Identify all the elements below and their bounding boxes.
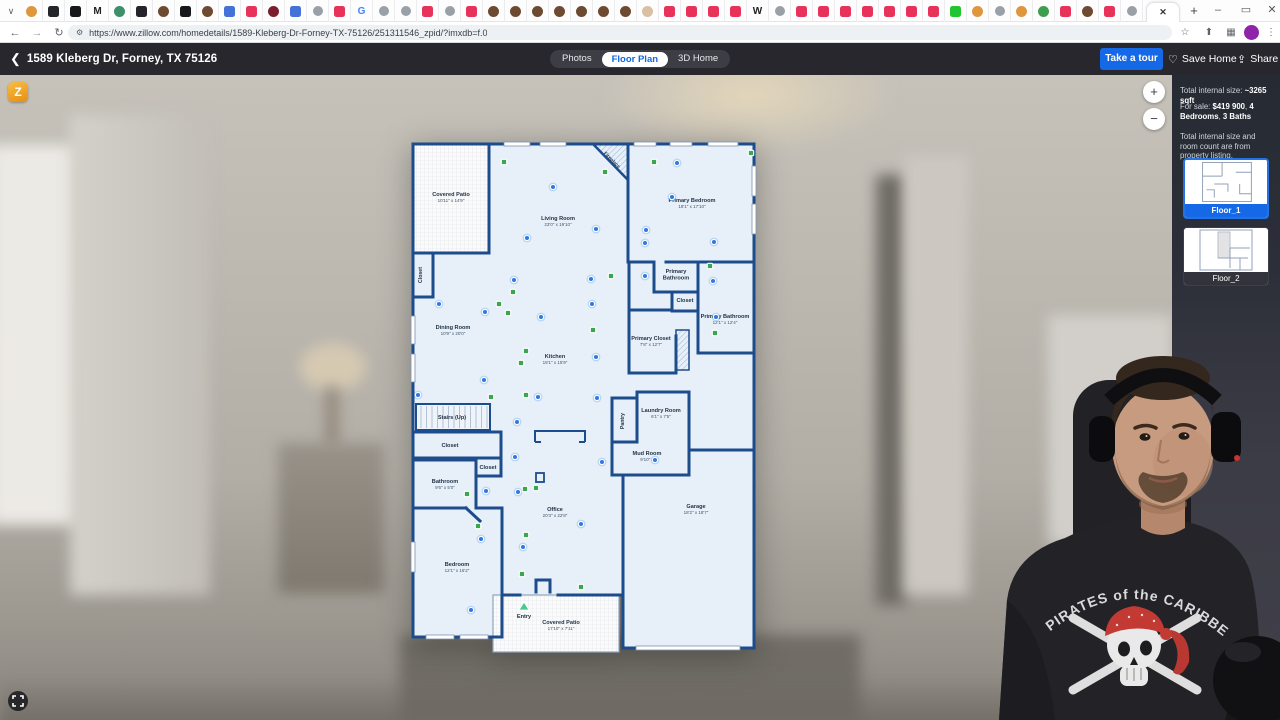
tab-favicon	[114, 6, 125, 17]
tab-favicon	[775, 6, 785, 16]
browser-tab[interactable]	[417, 0, 439, 22]
panorama-point-green[interactable]	[712, 330, 717, 335]
tab-favicon	[818, 6, 829, 17]
tab-favicon	[664, 6, 675, 17]
for-sale-text: For sale: $419 900, 4 Bedrooms, 3 Baths	[1180, 102, 1274, 121]
svg-text:12'1" x 16'2": 12'1" x 16'2"	[445, 568, 470, 573]
fullscreen-button[interactable]	[8, 691, 28, 711]
panorama-point-blue[interactable]	[467, 606, 476, 615]
svg-text:18'1" x 17'10": 18'1" x 17'10"	[678, 204, 706, 209]
panorama-point-blue[interactable]	[710, 238, 719, 247]
svg-text:18'2" x 18'7": 18'2" x 18'7"	[684, 510, 709, 515]
tab-favicon	[1016, 6, 1027, 17]
url-text: https://www.zillow.com/homedetails/1589-…	[89, 28, 487, 38]
panorama-point-blue[interactable]	[480, 376, 489, 385]
panorama-point-green[interactable]	[748, 150, 753, 155]
browser-tab[interactable]	[263, 0, 285, 22]
browser-tab[interactable]	[395, 0, 417, 22]
browser-tab[interactable]	[813, 0, 835, 22]
maximize-button[interactable]: ▭	[1234, 0, 1258, 20]
panorama-point-green[interactable]	[651, 159, 656, 164]
tab-favicon	[906, 6, 917, 17]
tab-favicon	[1104, 6, 1115, 17]
tab-3d-home[interactable]: 3D Home	[668, 52, 728, 66]
refresh-icon[interactable]: ↻	[52, 26, 66, 40]
browser-tab[interactable]	[769, 0, 791, 22]
browser-tab[interactable]	[1077, 0, 1099, 22]
browser-tab[interactable]	[1099, 0, 1121, 22]
svg-text:Closet: Closet	[441, 443, 458, 449]
tab-favicon	[554, 6, 565, 17]
svg-text:Closet: Closet	[418, 267, 424, 283]
svg-text:Pantry: Pantry	[620, 413, 626, 429]
tab-favicon	[70, 6, 81, 17]
tab-favicon	[334, 6, 345, 17]
floor-2-card[interactable]: Floor_2	[1183, 227, 1269, 286]
tab-favicon: G	[358, 6, 366, 17]
browser-tab[interactable]	[21, 0, 43, 22]
tab-favicon	[422, 6, 433, 17]
tab-favicon	[532, 6, 543, 17]
svg-text:20'3" x 22'8": 20'3" x 22'8"	[543, 513, 568, 518]
browser-tab[interactable]: W	[747, 0, 769, 22]
tab-favicon	[379, 6, 389, 16]
browser-tab[interactable]	[197, 0, 219, 22]
panorama-point-green[interactable]	[475, 523, 480, 528]
svg-text:Primary: Primary	[666, 269, 688, 275]
url-bar[interactable]: ⚙ https://www.zillow.com/homedetails/158…	[68, 25, 1172, 40]
browser-tab[interactable]	[175, 0, 197, 22]
share-button[interactable]: ⇪ Share	[1237, 48, 1278, 70]
browser-tab[interactable]	[527, 0, 549, 22]
tab-favicon	[928, 6, 939, 17]
tab-favicon	[401, 6, 411, 16]
browser-tab[interactable]	[571, 0, 593, 22]
tab-favicon	[48, 6, 59, 17]
panorama-point-blue[interactable]	[549, 183, 558, 192]
panorama-point-blue[interactable]	[577, 520, 586, 529]
floor-2-thumbnail-sketch	[1184, 228, 1268, 272]
browser-tab[interactable]	[219, 0, 241, 22]
property-address[interactable]: 1589 Kleberg Dr, Forney, TX 75126	[27, 53, 217, 65]
tab-favicon	[972, 6, 983, 17]
browser-tab[interactable]	[549, 0, 571, 22]
tab-favicon	[862, 6, 873, 17]
panorama-point-green[interactable]	[608, 273, 613, 278]
panorama-point-blue[interactable]	[510, 276, 519, 285]
active-tab[interactable]: ✕	[1146, 2, 1180, 22]
svg-text:10'9" x 20'0": 10'9" x 20'0"	[441, 331, 466, 336]
back-icon[interactable]: ←	[8, 26, 22, 40]
tab-floor-plan[interactable]: Floor Plan	[602, 52, 668, 67]
panorama-point-green[interactable]	[464, 491, 469, 496]
panorama-point-blue[interactable]	[534, 393, 543, 402]
tab-favicon	[246, 6, 257, 17]
extensions-icon[interactable]: ▦	[1224, 26, 1238, 40]
share-label: Share	[1250, 53, 1278, 65]
tab-favicon: M	[93, 6, 101, 17]
svg-text:23'0" x 19'10": 23'0" x 19'10"	[544, 222, 572, 227]
screen: { "browser": { "url": "https://www.zillo…	[0, 0, 1280, 720]
browser-tab[interactable]	[835, 0, 857, 22]
floor-1-thumbnail-sketch	[1185, 160, 1267, 204]
tab-favicon	[26, 6, 37, 17]
browser-tab[interactable]	[879, 0, 901, 22]
browser-tab[interactable]	[791, 0, 813, 22]
lamp-shade-blur	[300, 343, 366, 391]
browser-tab[interactable]	[483, 0, 505, 22]
svg-text:10'11" x 14'9": 10'11" x 14'9"	[438, 198, 465, 203]
browser-tab[interactable]	[307, 0, 329, 22]
take-a-tour-button[interactable]: Take a tour	[1100, 48, 1163, 70]
svg-text:Stairs (Up): Stairs (Up)	[438, 415, 466, 421]
side-panel-icon[interactable]: ⬆	[1202, 26, 1216, 40]
browser-tab[interactable]	[373, 0, 395, 22]
browser-tab[interactable]	[153, 0, 175, 22]
browser-tab[interactable]	[505, 0, 527, 22]
panorama-point-blue[interactable]	[477, 535, 486, 544]
tab-favicon	[290, 6, 301, 17]
webcam-overlay: PIRATES of the CARIBBEAN	[985, 300, 1280, 720]
save-home-label: Save Home	[1182, 53, 1237, 65]
browser-tab[interactable]	[615, 0, 637, 22]
back-chevron-icon[interactable]: ❮	[10, 51, 21, 67]
headphone-cup-right	[1211, 412, 1241, 462]
hallway-blur	[904, 155, 968, 595]
wall-blur	[70, 115, 210, 595]
panorama-point-blue[interactable]	[668, 193, 677, 202]
browser-tab[interactable]: G	[351, 0, 373, 22]
svg-text:19'1" x 15'9": 19'1" x 15'9"	[543, 360, 568, 365]
browser-tab[interactable]	[439, 0, 461, 22]
profile-avatar[interactable]	[1244, 25, 1259, 40]
tab-favicon	[445, 6, 455, 16]
panorama-point-blue[interactable]	[712, 313, 721, 322]
headphone-cup-left	[1089, 416, 1115, 462]
browser-tab[interactable]: M	[87, 0, 109, 22]
new-tab-button[interactable]: +	[1186, 3, 1202, 19]
panorama-point-green[interactable]	[590, 327, 595, 332]
tab-favicon	[180, 6, 191, 17]
tab-favicon	[466, 6, 477, 17]
browser-tab[interactable]	[593, 0, 615, 22]
svg-text:Closet: Closet	[479, 465, 496, 471]
tab-favicon: W	[753, 6, 762, 17]
browser-menu-icon[interactable]: ⋮	[1264, 26, 1278, 40]
minimize-button[interactable]: –	[1206, 0, 1230, 20]
panorama-point-blue[interactable]	[513, 418, 522, 427]
browser-tab[interactable]	[725, 0, 747, 22]
svg-text:Entry: Entry	[517, 614, 532, 620]
svg-text:9'6" x 5'0": 9'6" x 5'0"	[435, 485, 455, 490]
browser-tab[interactable]	[1055, 0, 1077, 22]
browser-tabs: MGW	[21, 0, 1143, 22]
browser-tab[interactable]	[65, 0, 87, 22]
close-button[interactable]: ✕	[1260, 0, 1280, 20]
floor-1-card[interactable]: Floor_1	[1183, 158, 1269, 219]
lamp-stand-blur	[326, 387, 338, 447]
tab-favicon	[708, 6, 719, 17]
tab-favicon	[202, 6, 213, 17]
nightstand-blur	[278, 443, 384, 593]
panorama-point-green[interactable]	[519, 571, 524, 576]
browser-tab[interactable]	[461, 0, 483, 22]
browser-tab[interactable]	[1011, 0, 1033, 22]
browser-tab[interactable]	[131, 0, 153, 22]
tab-favicon	[1082, 6, 1093, 17]
browser-tab[interactable]	[329, 0, 351, 22]
browser-tab[interactable]	[109, 0, 131, 22]
panorama-point-blue[interactable]	[588, 300, 597, 309]
share-icon: ⇪	[1237, 53, 1246, 66]
browser-tab[interactable]	[857, 0, 879, 22]
browser-tab[interactable]	[1033, 0, 1055, 22]
svg-text:Closet: Closet	[676, 298, 693, 304]
zoom-in-button[interactable]: +	[1143, 81, 1165, 103]
tab-favicon	[136, 6, 147, 17]
browser-tab[interactable]	[43, 0, 65, 22]
panorama-point-green[interactable]	[488, 394, 493, 399]
svg-text:17'10" x 7'11": 17'10" x 7'11"	[548, 626, 575, 631]
panorama-point-green[interactable]	[523, 392, 528, 397]
floor-plan[interactable]: Covered Patio10'11" x 14'9"Living Room23…	[408, 140, 768, 660]
panorama-point-green[interactable]	[578, 584, 583, 589]
browser-tab[interactable]	[945, 0, 967, 22]
panorama-point-green[interactable]	[533, 485, 538, 490]
forward-icon[interactable]: →	[30, 26, 44, 40]
tab-search-icon[interactable]: ∨	[4, 4, 18, 18]
tab-favicon	[995, 6, 1005, 16]
browser-tab[interactable]	[285, 0, 307, 22]
panorama-point-blue[interactable]	[537, 313, 546, 322]
tab-favicon	[796, 6, 807, 17]
tab-favicon	[686, 6, 697, 17]
browser-tab[interactable]	[989, 0, 1011, 22]
panorama-point-blue[interactable]	[709, 277, 718, 286]
browser-tab[interactable]	[967, 0, 989, 22]
panorama-point-blue[interactable]	[641, 239, 650, 248]
bookmark-star-icon[interactable]: ☆	[1178, 26, 1192, 40]
panorama-point-blue[interactable]	[651, 456, 660, 465]
tab-favicon	[642, 6, 653, 17]
browser-tab[interactable]	[681, 0, 703, 22]
panorama-point-green[interactable]	[523, 348, 528, 353]
tab-favicon	[224, 6, 235, 17]
browser-tab[interactable]	[241, 0, 263, 22]
panorama-point-blue[interactable]	[593, 394, 602, 403]
browser-tab[interactable]	[659, 0, 681, 22]
browser-tab[interactable]	[637, 0, 659, 22]
floor-1-label: Floor_1	[1185, 204, 1267, 217]
tab-favicon	[510, 6, 521, 17]
panorama-point-green[interactable]	[510, 289, 515, 294]
door-frame-blur	[876, 175, 906, 605]
sidebar-note: Total internal size and room count are f…	[1180, 132, 1274, 161]
panorama-point-green[interactable]	[522, 486, 527, 491]
tab-favicon	[1127, 6, 1137, 16]
panorama-point-blue[interactable]	[519, 543, 528, 552]
browser-tab[interactable]	[901, 0, 923, 22]
svg-text:6'1" x 7'5": 6'1" x 7'5"	[651, 414, 671, 419]
tab-photos[interactable]: Photos	[552, 52, 602, 66]
tab-favicon	[950, 6, 961, 17]
tab-favicon	[884, 6, 895, 17]
tab-favicon	[730, 6, 741, 17]
panorama-point-green[interactable]	[518, 360, 523, 365]
panorama-point-blue[interactable]	[598, 458, 607, 467]
browser-tab[interactable]	[703, 0, 725, 22]
tab-favicon	[620, 6, 631, 17]
tab-favicon	[313, 6, 323, 16]
tab-favicon	[488, 6, 499, 17]
svg-text:7'8" x 12'7": 7'8" x 12'7"	[640, 342, 663, 347]
heart-icon: ♡	[1168, 53, 1178, 66]
panorama-point-green[interactable]	[501, 159, 506, 164]
tab-favicon	[158, 6, 169, 17]
tab-favicon	[1060, 6, 1071, 17]
browser-tab[interactable]	[923, 0, 945, 22]
view-switcher: Photos Floor Plan 3D Home	[550, 50, 730, 68]
tab-favicon	[268, 6, 279, 17]
panorama-point-blue[interactable]	[482, 487, 491, 496]
panorama-point-blue[interactable]	[523, 234, 532, 243]
tab-favicon	[1038, 6, 1049, 17]
save-home-button[interactable]: ♡ Save Home	[1168, 48, 1237, 70]
zillow-logo: Z	[8, 82, 28, 102]
panorama-point-green[interactable]	[496, 301, 501, 306]
panorama-point-green[interactable]	[523, 532, 528, 537]
panorama-point-blue[interactable]	[481, 308, 490, 317]
panorama-point-blue[interactable]	[592, 225, 601, 234]
panorama-point-blue[interactable]	[641, 272, 650, 281]
panorama-point-blue[interactable]	[435, 300, 444, 309]
window-blur	[0, 145, 80, 525]
floor-2-label: Floor_2	[1184, 272, 1268, 285]
site-settings-icon[interactable]: ⚙	[76, 28, 83, 37]
panorama-point-blue[interactable]	[592, 353, 601, 362]
panorama-point-green[interactable]	[602, 169, 607, 174]
active-tab-favicon: ✕	[1159, 7, 1167, 18]
panorama-point-blue[interactable]	[511, 453, 520, 462]
panorama-point-blue[interactable]	[514, 488, 523, 497]
svg-text:Bathroom: Bathroom	[663, 276, 689, 282]
panorama-point-green[interactable]	[505, 310, 510, 315]
panorama-point-blue[interactable]	[673, 159, 682, 168]
fullscreen-icon	[8, 691, 28, 711]
tab-favicon	[576, 6, 587, 17]
panorama-point-green[interactable]	[707, 263, 712, 268]
tab-favicon	[598, 6, 609, 17]
panorama-point-blue[interactable]	[587, 275, 596, 284]
browser-tab[interactable]	[1121, 0, 1143, 22]
panorama-point-blue[interactable]	[414, 391, 423, 400]
tab-favicon	[840, 6, 851, 17]
zoom-out-button[interactable]: −	[1143, 108, 1165, 130]
panorama-point-blue[interactable]	[642, 226, 651, 235]
